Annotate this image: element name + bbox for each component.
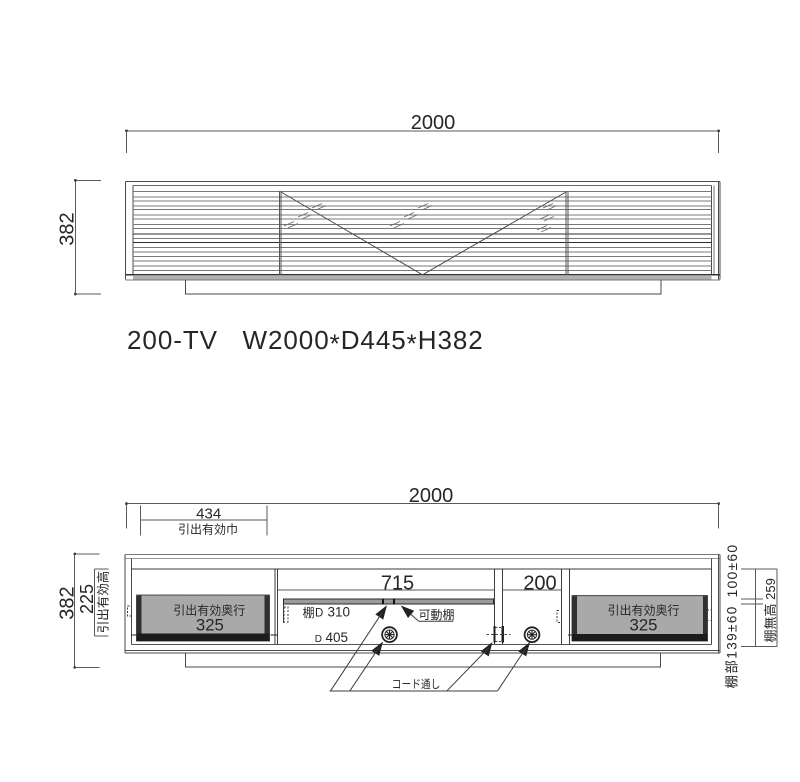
svg-text:200: 200	[523, 572, 556, 594]
svg-text:D: D	[315, 634, 322, 645]
svg-text:棚部139±60: 棚部139±60	[725, 605, 740, 688]
svg-text:可動棚: 可動棚	[419, 607, 455, 622]
svg-text:325: 325	[196, 615, 224, 634]
svg-text:715: 715	[381, 572, 414, 594]
svg-text:引出有効巾: 引出有効巾	[178, 522, 238, 537]
svg-text:434: 434	[196, 506, 221, 523]
svg-text:382: 382	[56, 586, 78, 619]
svg-text:D: D	[315, 608, 323, 620]
svg-text:225: 225	[77, 584, 97, 614]
svg-text:100±60: 100±60	[724, 544, 740, 598]
svg-text:引出有効高: 引出有効高	[96, 571, 111, 634]
svg-text:棚無高 259: 棚無高 259	[763, 578, 778, 642]
svg-text:2000: 2000	[411, 112, 456, 134]
svg-text:棚: 棚	[303, 605, 315, 620]
svg-text:2000: 2000	[409, 485, 454, 507]
svg-text:310: 310	[328, 604, 351, 619]
svg-text:200-TV W2000*D445*H382: 200-TV W2000*D445*H382	[127, 325, 484, 359]
svg-text:325: 325	[630, 615, 658, 634]
svg-text:382: 382	[57, 212, 79, 245]
svg-text:405: 405	[326, 630, 349, 645]
svg-text:コード通し: コード通し	[392, 678, 441, 691]
